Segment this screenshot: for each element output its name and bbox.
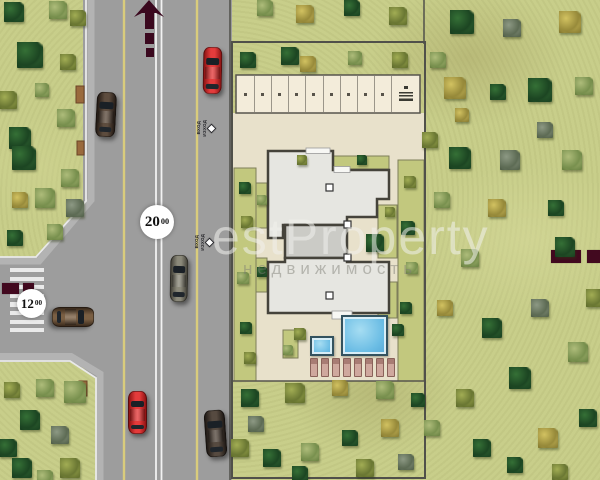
car-roof: [130, 409, 144, 420]
tree: [422, 132, 438, 148]
tree: [400, 302, 412, 314]
tree: [332, 380, 348, 396]
tree: [66, 199, 84, 217]
side-road-width-label: 1200: [17, 289, 46, 318]
tree: [450, 10, 474, 34]
tree: [575, 77, 593, 95]
tree: [61, 169, 79, 187]
tree: [434, 192, 450, 208]
tree: [70, 10, 86, 26]
sun-lounger: [354, 358, 362, 377]
parking-stall-marker: [278, 93, 281, 96]
tree: [357, 155, 367, 165]
tree: [64, 381, 86, 403]
tree: [381, 419, 399, 437]
tree: [35, 83, 49, 97]
zebra-stripe: [10, 328, 44, 332]
tree: [579, 409, 597, 427]
parking-stall-divider: [374, 76, 375, 112]
entrance-marker-text: ВХОД: [197, 121, 202, 134]
tree: [12, 192, 28, 208]
tree: [12, 458, 32, 478]
tree: [7, 230, 23, 246]
tree: [555, 237, 575, 257]
tree: [281, 47, 299, 65]
parking-stall-marker: [381, 93, 384, 96]
tree: [392, 52, 408, 68]
car-rear-window: [99, 127, 112, 132]
sun-lounger: [387, 358, 395, 377]
utility-stall-icon: [399, 92, 413, 101]
main-road-width-sup: 00: [161, 217, 169, 226]
tree: [257, 195, 267, 205]
car-windshield: [173, 266, 186, 273]
tree: [292, 466, 308, 480]
tree: [392, 324, 404, 336]
tree: [12, 146, 36, 170]
tree: [444, 77, 466, 99]
tree: [488, 199, 506, 217]
tree: [4, 2, 24, 22]
tree: [244, 352, 256, 364]
tree: [297, 155, 307, 165]
tree: [538, 428, 558, 448]
tree: [404, 176, 416, 188]
tree: [548, 200, 564, 216]
car-windshield: [78, 310, 84, 324]
tree: [283, 345, 293, 355]
zebra-stripe: [10, 277, 44, 281]
tree: [398, 454, 414, 470]
tree: [376, 381, 394, 399]
tree: [239, 182, 251, 194]
tree: [240, 52, 256, 68]
tree: [4, 382, 20, 398]
tree: [456, 389, 474, 407]
tree: [60, 54, 76, 70]
tree: [35, 188, 55, 208]
site-plan: estProperty недвижимость 2000 1200 ВХОД …: [0, 0, 600, 480]
sun-lounger: [376, 358, 384, 377]
parking-stall-marker: [330, 93, 333, 96]
tree: [49, 1, 67, 19]
tree: [17, 42, 43, 68]
entrance-diamond-icon: [205, 237, 215, 247]
parking-stall-divider: [357, 76, 358, 112]
car: [52, 307, 94, 327]
tree: [389, 7, 407, 25]
tree: [285, 383, 305, 403]
tree: [473, 439, 491, 457]
parking-stall-marker: [295, 93, 298, 96]
tree: [531, 299, 549, 317]
tree: [241, 389, 259, 407]
tree: [57, 109, 75, 127]
tree: [37, 470, 53, 480]
watermark-brand: estProperty: [212, 208, 490, 266]
car-rear-window: [210, 447, 224, 453]
kids-pool: [310, 336, 334, 356]
car-roof: [65, 309, 76, 324]
tree: [36, 379, 54, 397]
car: [95, 92, 117, 138]
parking-stall-divider: [288, 76, 289, 112]
tree: [437, 300, 453, 316]
tree: [411, 393, 425, 407]
tree: [562, 150, 582, 170]
sun-lounger: [365, 358, 373, 377]
car-roof: [172, 275, 186, 288]
tree: [344, 0, 360, 16]
tree: [455, 108, 469, 122]
tree: [301, 443, 319, 461]
tree: [60, 458, 80, 478]
sun-lounger: [332, 358, 340, 377]
tree: [240, 322, 252, 334]
tree: [348, 51, 362, 65]
parking-stall-marker: [347, 93, 350, 96]
parking-stall-divider: [305, 76, 306, 112]
car: [128, 391, 147, 434]
parking-stall-divider: [323, 76, 324, 112]
tree: [490, 84, 506, 100]
sun-lounger: [321, 358, 329, 377]
sun-lounger: [343, 358, 351, 377]
car: [203, 409, 227, 457]
tree: [528, 78, 552, 102]
parking-stall-marker: [312, 93, 315, 96]
parking-stall-marker: [244, 93, 247, 96]
tree: [449, 147, 471, 169]
tree: [507, 457, 523, 473]
tree: [568, 342, 588, 362]
car-roof: [207, 429, 224, 443]
entrance-diamond-icon: [207, 123, 217, 133]
sun-lounger: [310, 358, 318, 377]
side-road-width-sup: 00: [35, 299, 42, 307]
tree: [263, 449, 281, 467]
tree: [248, 416, 264, 432]
tree: [356, 459, 374, 477]
entrance-marker-text: ВХОД: [195, 235, 200, 248]
tree: [500, 150, 520, 170]
car-roof: [98, 111, 114, 124]
parking-stall-divider: [391, 76, 392, 112]
boundary-dash-left: [2, 283, 19, 294]
car-rear-window: [206, 84, 218, 89]
car-windshield: [99, 102, 114, 109]
side-road-width-value: 12: [21, 296, 34, 312]
tree: [537, 122, 553, 138]
watermark-tagline: недвижимость: [243, 259, 417, 279]
parking-stall-divider: [340, 76, 341, 112]
tree: [294, 328, 306, 340]
car-rear-window: [57, 311, 61, 324]
tree: [231, 439, 249, 457]
tree: [342, 430, 358, 446]
entrance-marker: ВХОД ИЗХОД: [195, 223, 213, 261]
car-windshield: [131, 401, 145, 407]
zebra-stripe: [10, 320, 44, 324]
car: [203, 47, 223, 94]
tree: [586, 289, 600, 307]
tree: [552, 464, 568, 480]
main-road-width-label: 2000: [140, 205, 174, 239]
tree: [300, 56, 316, 72]
parking-stall-divider: [254, 76, 255, 112]
car-windshield: [207, 420, 223, 428]
main-road-width-value: 20: [145, 214, 160, 231]
tree: [503, 19, 521, 37]
boundary-dash-right: [587, 250, 600, 263]
swimming-pool: [341, 315, 388, 356]
parking-stall-marker: [364, 93, 367, 96]
car-windshield: [206, 58, 220, 65]
tree: [0, 91, 17, 109]
parking-stall-divider: [271, 76, 272, 112]
parking-stall-marker: [261, 93, 264, 96]
tree: [20, 410, 40, 430]
tree: [424, 420, 440, 436]
tree: [47, 224, 63, 240]
tree: [482, 318, 502, 338]
zebra-stripe: [10, 268, 44, 272]
tree: [51, 426, 69, 444]
tree: [509, 367, 531, 389]
tree: [430, 52, 446, 68]
tree: [257, 0, 273, 16]
car-rear-window: [173, 292, 185, 297]
car-rear-window: [131, 425, 143, 430]
tree: [296, 5, 314, 23]
tree: [559, 11, 581, 33]
utility-stall-marker: [404, 86, 408, 89]
car: [170, 255, 189, 302]
tree: [0, 439, 17, 457]
entrance-marker: ВХОД ИЗХОД: [197, 109, 215, 147]
car-roof: [205, 67, 219, 80]
